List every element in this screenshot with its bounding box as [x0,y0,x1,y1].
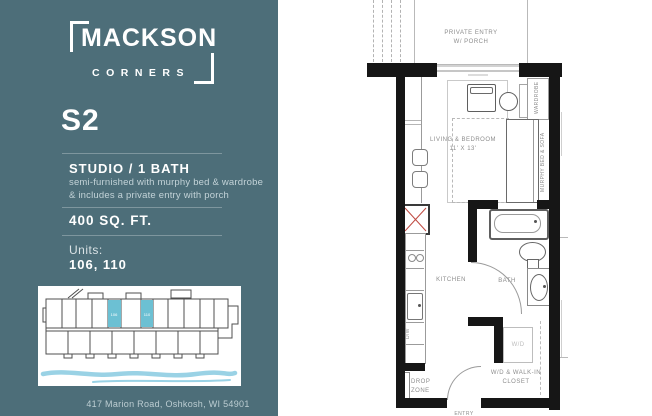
dimension-line [561,112,562,156]
porch-label: PRIVATE ENTRY W/ PORCH [424,29,518,46]
porch-label-line1: PRIVATE ENTRY [424,29,518,38]
porch-step-line [382,0,383,62]
plan-sheet: MACKSON CORNERS S2 STUDIO / 1 BATH semi-… [0,0,652,416]
counter-divider [405,120,421,121]
wall-closet-west [494,317,503,363]
bar-stool [412,171,428,188]
bathtub-basin [494,214,541,233]
stove-burner [408,254,416,262]
porch-label-line2: W/ PORCH [424,38,518,47]
wall-bottom-right [481,398,560,408]
cabinet-divider [405,268,424,269]
entry-door-tick [468,74,488,76]
dimension-tick [560,237,568,238]
wall-bath-west [468,200,477,262]
washer-dryer: W/D [503,327,533,363]
wall-left [396,63,405,408]
closet-label-line1: W/D & WALK-IN [484,369,548,378]
bar-stool [412,149,428,166]
dishwasher-label: D/W [404,324,413,344]
bath-faucet [543,285,546,288]
stove-burner [416,254,424,262]
drop-zone-line1: DROP [411,378,443,387]
murphy-bed-cabinet [506,119,539,203]
counter-divider [405,124,421,125]
refrigerator [401,204,430,235]
floor-plan: WARDROBE MURPHY BED & SOFA LIVING & BEDR… [0,0,652,416]
bath-door-arc [471,262,522,314]
entry-door-line [436,65,520,67]
wall-kitchen-south [404,363,425,371]
porch-step-line [391,0,392,62]
entry-door-line [436,70,520,72]
kitchen-faucet [418,304,421,307]
dimension-tick [560,357,568,358]
living-room-label: LIVING & BEDROOM 11' X 13' [428,136,498,153]
wardrobe-label: WARDROBE [532,79,543,117]
armchair [467,84,496,112]
wall-bath-north-right [537,200,553,209]
cabinet-divider [405,322,424,323]
armchair-back [470,87,493,94]
tub-faucet [534,220,537,223]
cabinet-divider [405,344,424,345]
closet-label-line2: CLOSET [484,378,548,387]
wall-bottom-left [396,398,447,408]
living-dimensions: 11' X 13' [428,145,498,154]
closet-label: W/D & WALK-IN CLOSET [484,369,548,386]
side-table [499,92,518,111]
cabinet-divider [405,290,424,291]
porch-step-line [400,0,401,62]
bathtub [489,209,549,240]
kitchen-label: KITCHEN [432,276,470,285]
wall-right [549,63,560,410]
porch-step-line [373,0,374,62]
living-label-line1: LIVING & BEDROOM [428,136,498,145]
murphy-bed-folded-outline [452,118,509,203]
entry-label: ENTRY [444,411,484,416]
cabinet-divider [405,250,424,251]
drop-zone-label: DROP ZONE [411,378,443,395]
dimension-line [561,300,562,358]
refrigerator-door-swing [403,206,428,233]
drop-zone-line2: ZONE [411,387,443,396]
murphy-bed-face-line [533,120,534,202]
entry-door-arc [447,366,481,400]
murphy-bed-label: MURPHY BED & SOFA [538,122,548,202]
